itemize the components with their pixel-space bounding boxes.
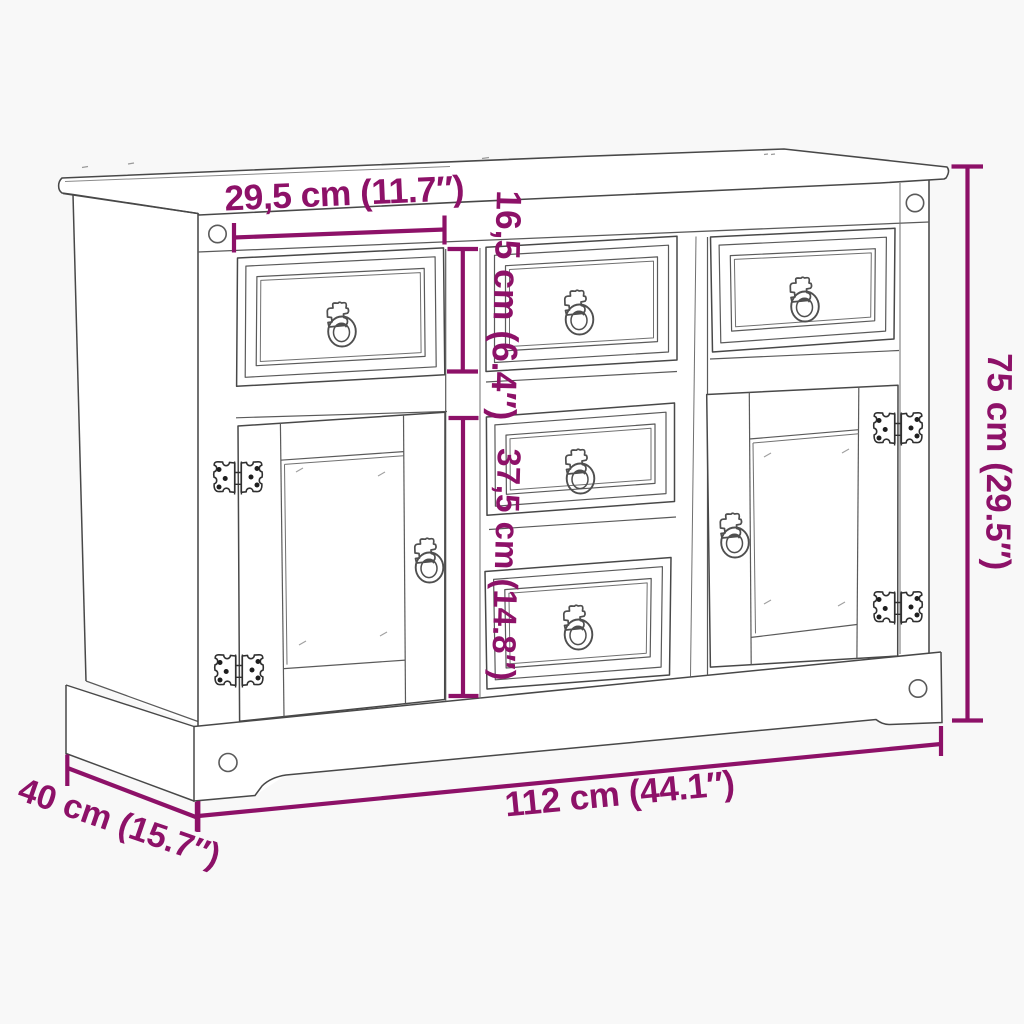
svg-text:75 cm (29.5″): 75 cm (29.5″) bbox=[978, 353, 1019, 571]
svg-text:37,5 cm (14.8″): 37,5 cm (14.8″) bbox=[485, 448, 528, 681]
svg-text:112 cm (44.1″): 112 cm (44.1″) bbox=[503, 764, 736, 825]
svg-text:16,5 cm (6.4″): 16,5 cm (6.4″) bbox=[483, 190, 529, 421]
